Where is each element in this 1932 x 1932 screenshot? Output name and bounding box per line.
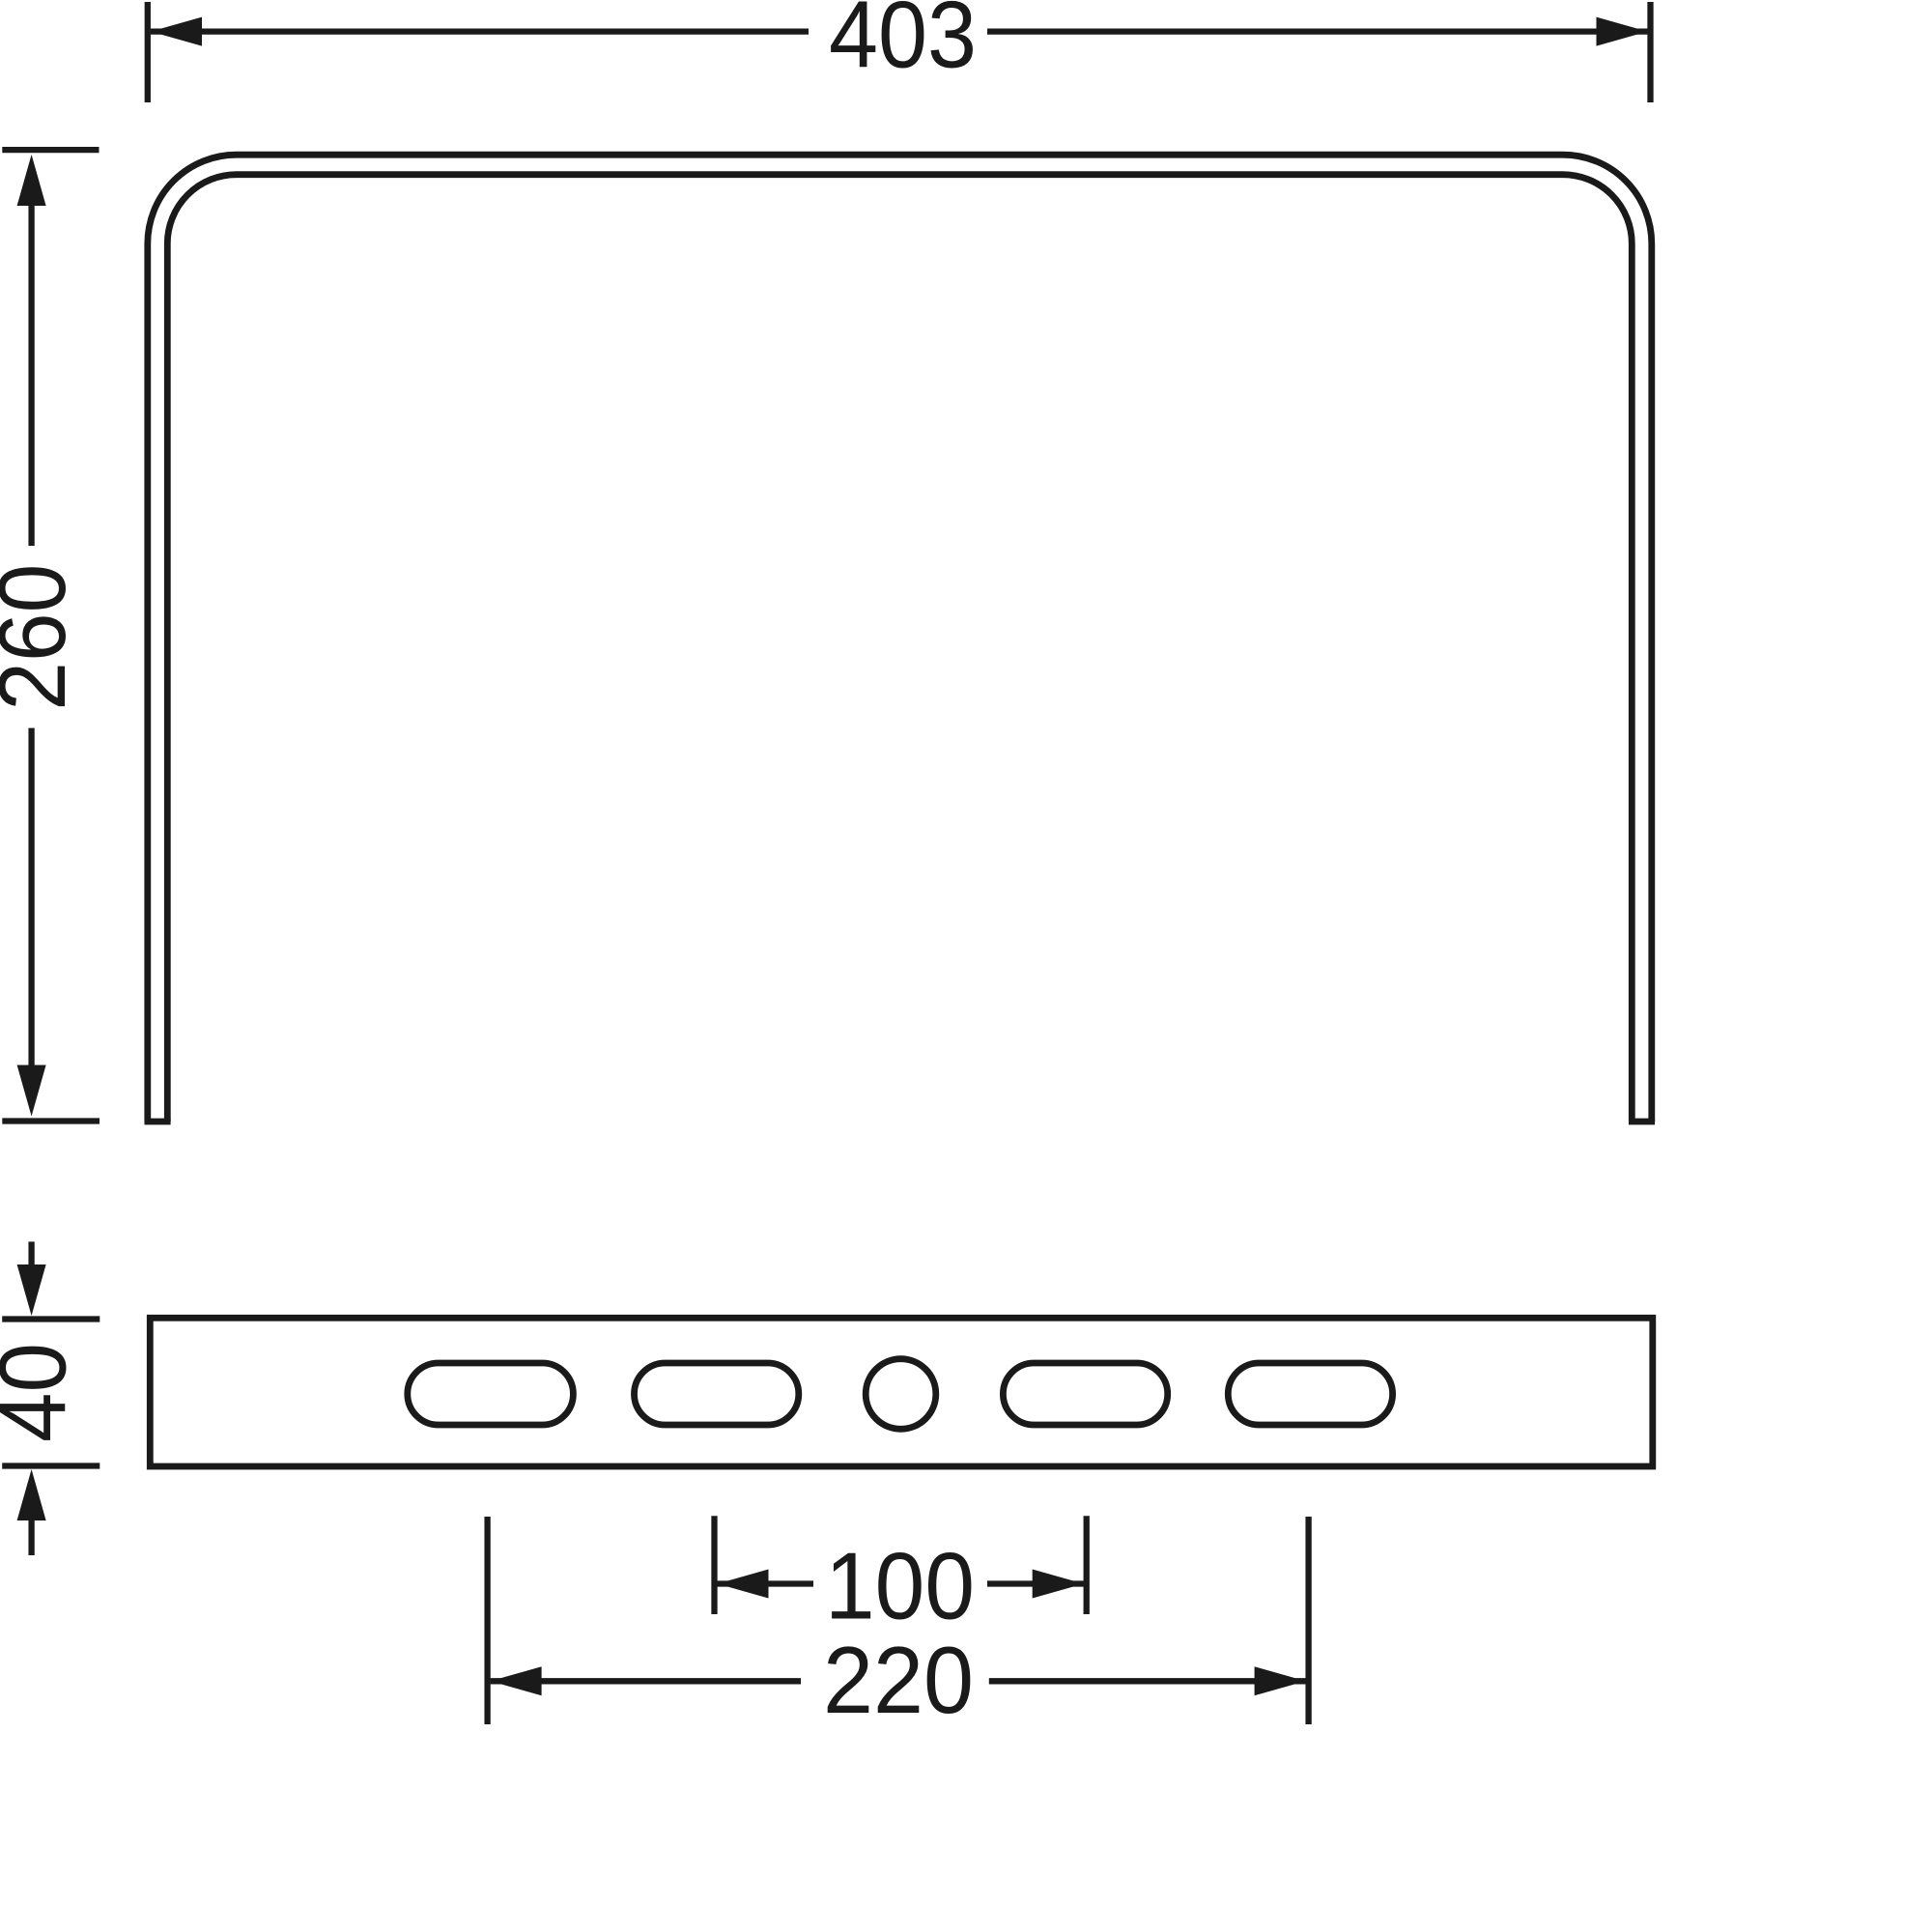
svg-text:403: 403 [829, 0, 977, 88]
svg-text:220: 220 [823, 1627, 974, 1733]
svg-text:260: 260 [0, 564, 85, 711]
svg-text:40: 40 [0, 1343, 86, 1442]
svg-text:100: 100 [825, 1533, 975, 1639]
